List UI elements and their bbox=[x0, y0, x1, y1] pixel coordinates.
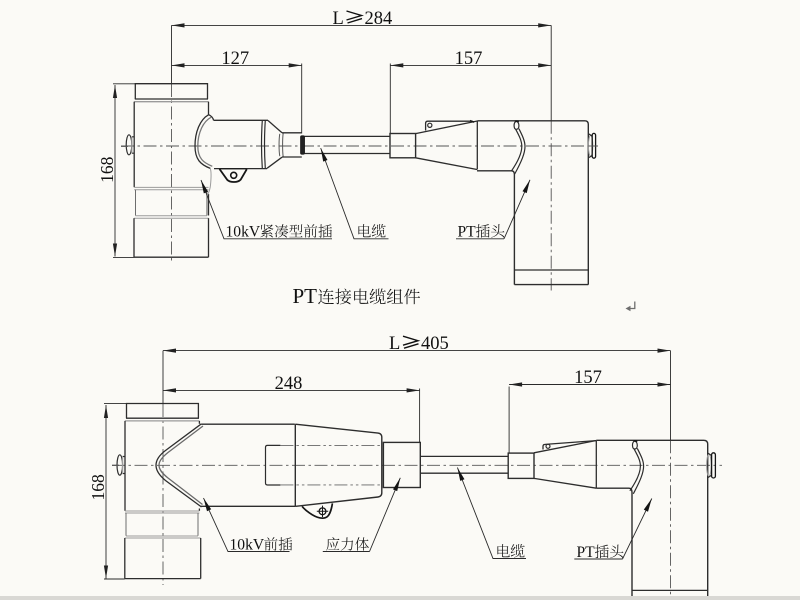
svg-text:10kV: 10kV bbox=[230, 537, 265, 554]
svg-text:248: 248 bbox=[275, 374, 303, 394]
svg-text:PT: PT bbox=[577, 544, 596, 561]
svg-text:157: 157 bbox=[455, 49, 483, 69]
svg-text:168: 168 bbox=[88, 474, 108, 501]
svg-text:L: L bbox=[389, 334, 400, 354]
svg-text:168: 168 bbox=[97, 156, 117, 183]
svg-text:405: 405 bbox=[421, 334, 449, 354]
svg-text:10kV: 10kV bbox=[226, 224, 261, 241]
svg-text:PT: PT bbox=[293, 284, 318, 308]
svg-text:PT: PT bbox=[458, 224, 477, 241]
svg-text:284: 284 bbox=[365, 9, 393, 29]
svg-text:127: 127 bbox=[221, 49, 249, 69]
svg-text:L: L bbox=[333, 9, 344, 29]
svg-text:157: 157 bbox=[574, 368, 602, 388]
